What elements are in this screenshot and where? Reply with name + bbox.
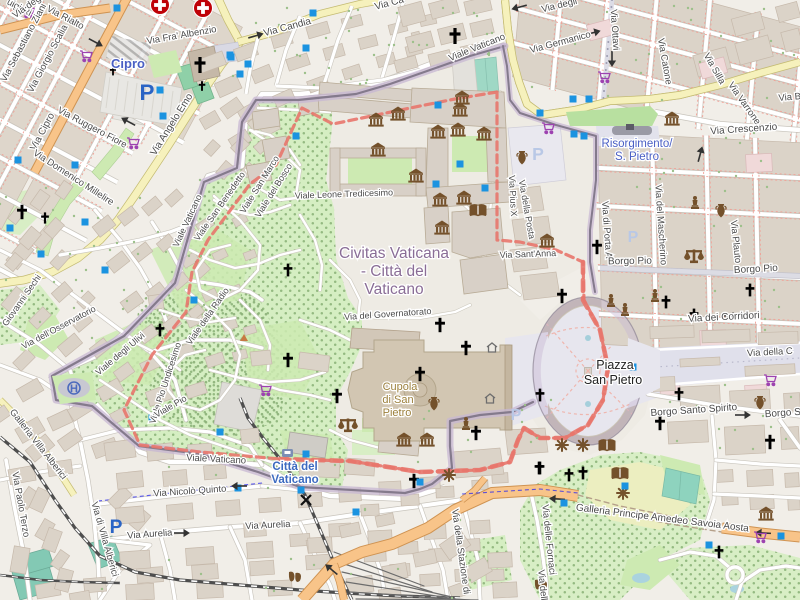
svg-text:di San: di San <box>382 394 413 406</box>
svg-text:Borgo Pio: Borgo Pio <box>608 256 653 268</box>
svg-text:Vaticano: Vaticano <box>271 474 318 486</box>
svg-text:Borgo Pio: Borgo Pio <box>734 263 779 276</box>
svg-text:P: P <box>628 229 639 246</box>
svg-text:Risorgimento/: Risorgimento/ <box>602 138 674 150</box>
svg-text:Civitas Vaticana: Civitas Vaticana <box>339 245 449 262</box>
svg-text:Cupola: Cupola <box>383 381 419 393</box>
svg-text:San Pietro: San Pietro <box>584 373 642 387</box>
svg-text:Via B: Via B <box>778 91 800 104</box>
svg-text:P: P <box>532 144 544 164</box>
svg-text:P: P <box>511 407 522 424</box>
svg-text:Cipro: Cipro <box>111 56 145 71</box>
svg-text:P: P <box>110 517 123 538</box>
svg-text:Pietro: Pietro <box>383 407 412 419</box>
svg-text:H: H <box>70 383 78 395</box>
svg-text:S. Pietro: S. Pietro <box>615 151 659 163</box>
svg-text:P: P <box>140 80 155 105</box>
svg-text:Vaticano: Vaticano <box>364 281 423 298</box>
svg-text:Via Sant'Anna: Via Sant'Anna <box>499 248 556 260</box>
svg-text:- Città del: - Città del <box>361 263 427 280</box>
svg-text:Piazza: Piazza <box>596 358 634 372</box>
svg-text:Città del: Città del <box>272 461 317 473</box>
